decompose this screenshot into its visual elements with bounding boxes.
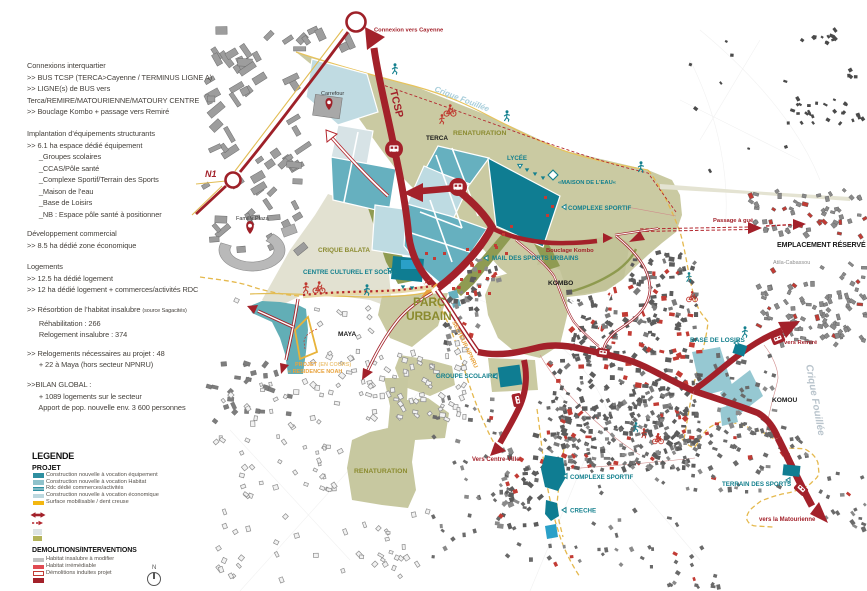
svg-text:KOMOU: KOMOU [772, 397, 798, 404]
svg-text:TERCA: TERCA [426, 135, 448, 142]
svg-text:Atila-Cabassou: Atila-Cabassou [773, 260, 810, 266]
svg-text:Vers Centre-Ville: Vers Centre-Ville [472, 457, 520, 463]
svg-text:CENTRE CULTUREL ET SOCIAL: CENTRE CULTUREL ET SOCIAL [303, 269, 398, 276]
svg-text:MAIL DES SPORTS URBAINS: MAIL DES SPORTS URBAINS [492, 255, 579, 262]
svg-text:N1: N1 [205, 169, 217, 179]
svg-text:vers Remiré: vers Remiré [784, 340, 818, 346]
svg-text:Bouclage Kombo: Bouclage Kombo [546, 248, 594, 254]
svg-text:«MAISON DE L’EAU«: «MAISON DE L’EAU« [558, 180, 616, 186]
svg-text:TERRAIN DES SPORTS: TERRAIN DES SPORTS [722, 481, 791, 488]
svg-text:CRIQUE BALATA: CRIQUE BALATA [318, 247, 370, 254]
svg-text:BASE DE LOSIRS: BASE DE LOSIRS [690, 337, 746, 344]
svg-text:Crique Fouillée: Crique Fouillée [803, 364, 826, 437]
svg-text:vers la Matourienne: vers la Matourienne [759, 517, 816, 523]
svg-text:LYCÉE: LYCÉE [507, 154, 527, 162]
svg-text:« RESIDENCE NOAH: « RESIDENCE NOAH [288, 369, 342, 375]
svg-text:EMPLACEMENT RÉSERVÉ: EMPLACEMENT RÉSERVÉ [777, 240, 866, 249]
svg-text:KOMBO: KOMBO [548, 280, 573, 287]
svg-text:COMPLEXE SPORTIF: COMPLEXE SPORTIF [570, 474, 633, 481]
svg-text:Familly Plaza: Familly Plaza [236, 216, 270, 222]
svg-text:RENATURATION: RENATURATION [354, 468, 407, 475]
svg-text:Carrefour: Carrefour [321, 91, 344, 97]
svg-text:MAYA: MAYA [338, 331, 356, 338]
svg-text:N: N [152, 565, 156, 571]
svg-text:COMPLEXE SPORTIF: COMPLEXE SPORTIF [568, 205, 631, 212]
svg-text:PARC: PARC [413, 295, 446, 309]
svg-text:RENATURATION: RENATURATION [453, 130, 506, 137]
svg-text:Connexion vers Cayenne: Connexion vers Cayenne [374, 28, 444, 34]
svg-text:GROUPE SCOLAIRE: GROUPE SCOLAIRE [436, 373, 497, 380]
svg-text:CRECHE: CRECHE [570, 508, 596, 515]
svg-text:PROJET (EN COURS): PROJET (EN COURS) [295, 362, 351, 368]
svg-text:Passage à gué: Passage à gué [713, 218, 754, 224]
svg-text:URBAIN: URBAIN [406, 309, 451, 323]
